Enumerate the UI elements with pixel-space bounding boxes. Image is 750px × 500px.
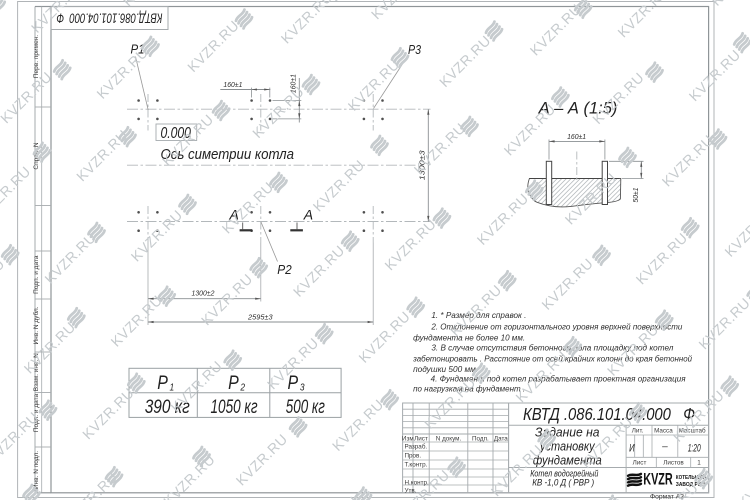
svg-text:Подп.: Подп. (472, 435, 489, 442)
svg-text:Р2: Р2 (277, 262, 292, 277)
svg-text:Инв. N дубл.: Инв. N дубл. (32, 306, 40, 344)
svg-text:КВТД.086.101.04.000 Ф: КВТД.086.101.04.000 Ф (57, 11, 163, 27)
svg-text:Дата: Дата (494, 435, 508, 442)
svg-text:1:20: 1:20 (688, 443, 702, 455)
svg-text:Перв. примен.: Перв. примен. (33, 35, 40, 78)
svg-text:1050 кг: 1050 кг (211, 397, 258, 418)
svg-text:Лист: Лист (633, 460, 647, 467)
svg-text:КВТД .086.101.04.000 Ф: КВТД .086.101.04.000 Ф (523, 404, 695, 424)
svg-text:фундамента не более 10 мм.: фундамента не более 10 мм. (413, 333, 525, 343)
svg-text:160±1: 160±1 (223, 80, 242, 89)
svg-text:KVZR: KVZR (643, 470, 673, 489)
svg-text:Т.контр.: Т.контр. (405, 462, 428, 469)
svg-text:–: – (661, 442, 668, 453)
svg-text:Лист: Лист (414, 435, 428, 442)
svg-text:А: А (303, 207, 313, 223)
svg-text:Пров.: Пров. (405, 453, 422, 460)
svg-text:Инв. N подл.: Инв. N подл. (33, 451, 40, 489)
svg-text:50±1: 50±1 (631, 188, 640, 203)
svg-text:подушки 500 мм.: подушки 500 мм. (413, 364, 478, 374)
svg-text:КВ -1,0 Д ( РВР ): КВ -1,0 Д ( РВР ) (532, 478, 594, 488)
svg-text:И: И (629, 443, 635, 455)
svg-text:2595±3: 2595±3 (247, 313, 273, 322)
svg-text:Разраб.: Разраб. (405, 443, 428, 451)
svg-text:Р3: Р3 (408, 42, 422, 57)
svg-text:Листов: Листов (663, 460, 684, 467)
svg-text:1300±2: 1300±2 (192, 289, 216, 298)
svg-text:Подп. и дата: Подп. и дата (33, 255, 40, 294)
svg-text:1: 1 (697, 460, 701, 467)
svg-text:Изм: Изм (402, 435, 414, 442)
svg-text:500 кг: 500 кг (286, 397, 325, 418)
svg-text:160±1: 160±1 (567, 132, 586, 141)
svg-text:N докум.: N докум. (436, 435, 462, 442)
